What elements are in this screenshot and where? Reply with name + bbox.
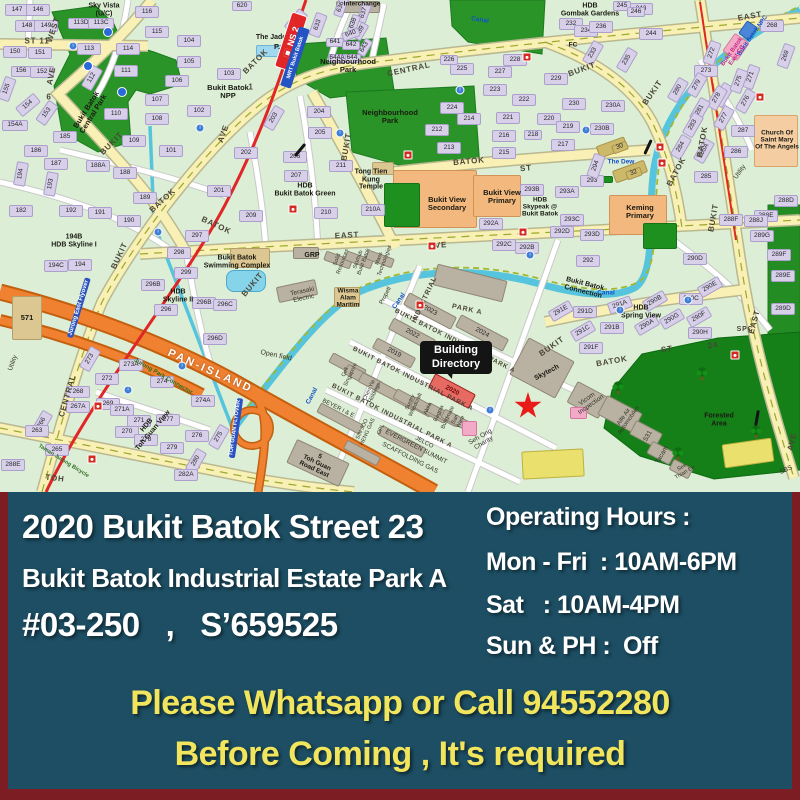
hours-title: Operating Hours : — [486, 503, 690, 532]
play-icon — [83, 61, 93, 71]
info-icon: i — [616, 306, 625, 315]
info-icon: i — [684, 296, 693, 305]
bus-icon — [94, 402, 103, 411]
info-icon: i — [456, 86, 465, 95]
map-poi-layer: iiiiiiiiiiii — [0, 0, 800, 492]
tree-icon — [695, 367, 710, 382]
bus-icon — [404, 151, 413, 160]
info-icon: i — [196, 124, 205, 133]
info-panel: 2020 Bukit Batok Street 23 Bukit Batok I… — [0, 492, 800, 800]
cta-whatsapp-call: Please Whatsapp or Call 94552280 — [130, 684, 670, 723]
hours-mon-fri: Mon - Fri : 10AM-6PM — [486, 548, 737, 577]
star-icon — [514, 392, 542, 420]
cta-before-coming: Before Coming , It's required — [175, 735, 626, 774]
building-directory-callout: Building Directory — [420, 341, 492, 374]
callout-line2: Directory — [432, 358, 480, 371]
bus-icon — [289, 205, 298, 214]
info-icon: i — [124, 386, 133, 395]
tree-icon — [749, 425, 764, 440]
hours-sun-ph: Sun & PH : Off — [486, 632, 658, 661]
play-icon — [103, 27, 113, 37]
hours-sat: Sat : 10AM-4PM — [486, 591, 679, 620]
bus-icon — [88, 455, 97, 464]
info-icon: i — [69, 42, 78, 51]
street-map: 20232024202220192020147146148149113D113C… — [0, 0, 800, 492]
bus-icon — [519, 228, 528, 237]
callout-line1: Building — [434, 344, 478, 357]
address-unit-postal: #03-250 , S’659525 — [22, 606, 338, 644]
tree-icon — [671, 447, 686, 462]
info-icon: i — [336, 129, 345, 138]
bus-icon — [428, 242, 437, 251]
flyer: 20232024202220192020147146148149113D113C… — [0, 0, 800, 800]
bus-icon — [416, 301, 425, 310]
bus-icon — [658, 159, 667, 168]
info-icon: i — [154, 228, 163, 237]
info-icon: i — [582, 126, 591, 135]
tl-icon — [643, 139, 652, 155]
address-street: 2020 Bukit Batok Street 23 — [22, 508, 424, 546]
tree-icon — [611, 381, 626, 396]
bus-icon — [731, 351, 740, 360]
info-icon: i — [486, 406, 495, 415]
bus-icon — [756, 93, 765, 102]
play-icon — [117, 87, 127, 97]
tl-icon — [294, 143, 307, 157]
info-icon: i — [178, 362, 187, 371]
bus-icon — [656, 143, 665, 152]
info-icon: i — [526, 251, 535, 260]
bus-icon — [523, 53, 532, 62]
address-estate: Bukit Batok Industrial Estate Park A — [22, 563, 447, 594]
